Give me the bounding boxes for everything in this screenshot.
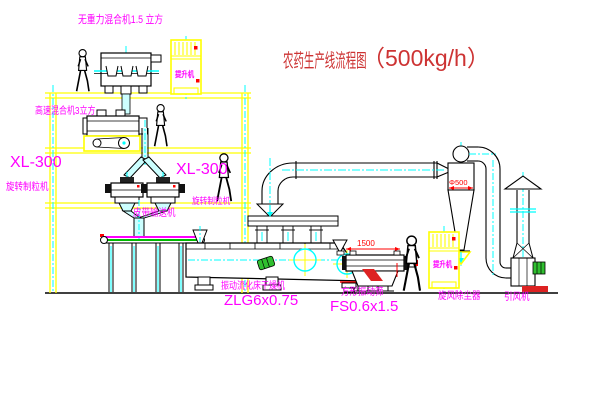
label-elevator-bottom: 提升机 <box>433 261 452 269</box>
worker-top-floor <box>77 50 89 92</box>
cad-flow-diagram: 无重力混合机1.5 立方 农药生产线流程图 （500kg/h） 高速混合机3立方… <box>0 0 600 403</box>
bucket-elevator-bottom <box>429 226 459 292</box>
label-sieve-name: 方形振动筛 <box>341 288 384 298</box>
gravity-free-mixer <box>94 46 161 114</box>
label-elevator-top: 提升机 <box>175 71 194 79</box>
discharge-chute <box>119 200 171 241</box>
dimension-sieve-length: 1500 <box>357 240 375 248</box>
label-sieve-model: FS0.6x1.5 <box>330 299 398 314</box>
label-dryer-model: ZLG6x0.75 <box>224 293 298 308</box>
diagram-title: 农药生产线流程图 <box>283 52 367 71</box>
label-granulator-left-name: 旋转制粒机 <box>6 183 49 193</box>
diagram-title-capacity: （500kg/h） <box>362 47 490 70</box>
label-gravity-mixer: 无重力混合机1.5 立方 <box>78 15 163 26</box>
label-granulator-left-model: XL-300 <box>10 155 62 171</box>
label-belt-conveyor: 皮带输送机 <box>133 209 176 219</box>
y-splitter-chute <box>124 157 166 178</box>
label-granulator-right-name: 旋转制粒机 <box>192 197 230 206</box>
fluid-bed-dryer <box>186 204 366 292</box>
label-dryer-name: 振动流化床干燥机 <box>221 282 285 292</box>
worker-second-floor <box>155 105 167 147</box>
label-granulator-right-model: XL-300 <box>176 162 228 178</box>
induced-draft-fan <box>511 258 548 292</box>
worker-ground <box>404 236 420 291</box>
exhaust-duct <box>262 158 449 204</box>
dimension-cyclone-diameter: Φ500 <box>449 179 468 187</box>
bucket-elevator-top <box>171 36 201 99</box>
high-speed-mixer <box>83 110 148 165</box>
label-fan: 引风机 <box>504 293 530 303</box>
label-high-speed-mixer: 高速混合机3立方 <box>35 107 95 117</box>
label-cyclone: 旋风除尘器 <box>438 292 481 302</box>
